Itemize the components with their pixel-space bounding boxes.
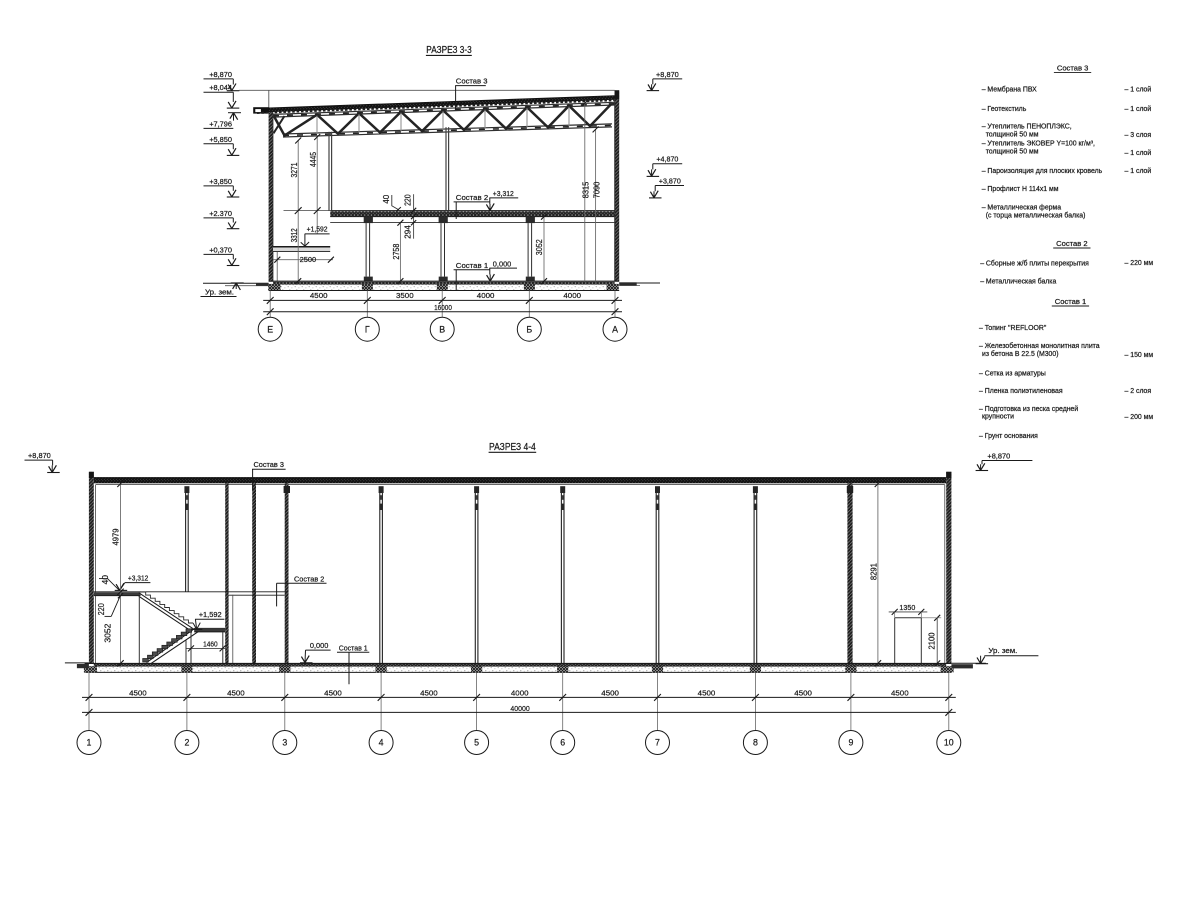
svg-text:Состав 1: Состав 1 [339, 643, 368, 652]
svg-text:3271: 3271 [290, 162, 299, 177]
svg-text:А: А [612, 324, 618, 334]
svg-text:10: 10 [944, 738, 954, 748]
svg-text:1350: 1350 [899, 603, 915, 612]
svg-text:3312: 3312 [290, 228, 299, 242]
svg-text:8291: 8291 [870, 563, 879, 581]
svg-text:Состав 2: Состав 2 [294, 574, 324, 583]
svg-text:+5,850: +5,850 [209, 135, 232, 144]
svg-text:– 150 мм: – 150 мм [1125, 352, 1154, 359]
svg-text:4000: 4000 [477, 291, 495, 300]
svg-text:толщиной 50 мм: толщиной 50 мм [986, 148, 1039, 156]
svg-text:6: 6 [560, 738, 565, 748]
svg-text:– 220 мм: – 220 мм [1125, 260, 1154, 267]
svg-text:– Сборные ж/б плиты перекрытия: – Сборные ж/б плиты перекрытия [980, 260, 1089, 268]
svg-text:40: 40 [382, 194, 391, 204]
svg-text:– Пленка полиэтиленовая: – Пленка полиэтиленовая [979, 388, 1063, 395]
svg-text:– Металлическая ферма: – Металлическая ферма [982, 204, 1062, 211]
svg-text:2758: 2758 [392, 243, 401, 259]
svg-text:0,000: 0,000 [310, 641, 329, 650]
svg-text:Состав 3: Состав 3 [456, 76, 488, 85]
svg-text:+7,796: +7,796 [209, 119, 232, 128]
svg-text:Состав 2: Состав 2 [456, 193, 488, 202]
svg-text:– Топинг "REFLOOR": – Топинг "REFLOOR" [979, 325, 1047, 332]
svg-text:Ур. зем.: Ур. зем. [988, 646, 1017, 655]
svg-text:– Металлическая балка: – Металлическая балка [980, 278, 1056, 286]
svg-text:Ур. зем.: Ур. зем. [205, 288, 234, 297]
svg-text:4500: 4500 [891, 688, 909, 697]
svg-text:8: 8 [753, 738, 758, 748]
svg-text:294: 294 [403, 225, 412, 239]
svg-text:РАЗРЕЗ 4-4: РАЗРЕЗ 4-4 [489, 442, 536, 453]
svg-text:– Профлист Н 114х1 мм: – Профлист Н 114х1 мм [982, 186, 1059, 193]
svg-text:– 1 слой: – 1 слой [1125, 149, 1152, 157]
svg-text:4445: 4445 [309, 152, 318, 167]
svg-text:+8,044: +8,044 [209, 83, 232, 92]
svg-text:Состав 3: Состав 3 [254, 460, 284, 469]
svg-text:2500: 2500 [300, 255, 317, 264]
svg-text:8315: 8315 [581, 181, 590, 198]
svg-text:220: 220 [97, 603, 106, 615]
svg-text:4500: 4500 [310, 291, 328, 300]
svg-text:– 200 мм: – 200 мм [1125, 414, 1154, 421]
svg-text:3052: 3052 [104, 623, 113, 643]
svg-text:– 1 слой: – 1 слой [1125, 105, 1152, 113]
svg-text:+3,850: +3,850 [209, 177, 232, 186]
svg-text:Состав 3: Состав 3 [1057, 63, 1089, 72]
svg-text:40000: 40000 [510, 704, 529, 713]
svg-text:– Сетка из арматуры: – Сетка из арматуры [979, 370, 1046, 377]
svg-text:+8,870: +8,870 [656, 70, 679, 79]
svg-text:крупности: крупности [982, 413, 1014, 420]
svg-text:1460: 1460 [203, 639, 218, 648]
svg-text:Б: Б [526, 324, 532, 334]
svg-text:из бетона В 22.5 (М300): из бетона В 22.5 (М300) [982, 350, 1059, 358]
svg-text:3500: 3500 [396, 291, 414, 300]
svg-text:Состав 1: Состав 1 [1055, 297, 1087, 306]
svg-text:Е: Е [267, 324, 273, 334]
svg-text:+8,870: +8,870 [987, 452, 1010, 461]
svg-text:4500: 4500 [698, 688, 716, 697]
svg-text:4: 4 [379, 738, 384, 748]
svg-text:5: 5 [474, 738, 479, 748]
svg-text:4979: 4979 [111, 528, 120, 546]
svg-text:Состав 2: Состав 2 [1056, 239, 1088, 248]
svg-text:4500: 4500 [324, 688, 342, 697]
svg-text:4000: 4000 [563, 291, 581, 300]
svg-text:+8,870: +8,870 [209, 70, 232, 79]
svg-text:– Утеплитель ПЕНОПЛЭКС,: – Утеплитель ПЕНОПЛЭКС, [982, 123, 1072, 130]
svg-text:0,000: 0,000 [493, 259, 512, 268]
svg-text:7090: 7090 [592, 181, 601, 198]
svg-text:– Грунт основания: – Грунт основания [979, 433, 1038, 440]
svg-text:4500: 4500 [420, 688, 438, 697]
svg-text:– Подготовка из песка средней: – Подготовка из песка средней [979, 405, 1078, 413]
svg-text:+4,870: +4,870 [656, 155, 678, 164]
svg-text:+3,312: +3,312 [493, 189, 514, 198]
svg-text:3052: 3052 [535, 239, 544, 255]
svg-text:+3,870: +3,870 [659, 177, 681, 186]
svg-text:+1,592: +1,592 [307, 225, 328, 234]
svg-text:4000: 4000 [511, 688, 529, 697]
svg-text:– Пароизоляция для плоских кро: – Пароизоляция для плоских кровель [982, 168, 1103, 175]
svg-text:220: 220 [404, 194, 413, 206]
svg-text:РАЗРЕЗ 3-3: РАЗРЕЗ 3-3 [426, 45, 472, 56]
svg-text:3: 3 [282, 738, 287, 748]
svg-text:В: В [439, 324, 445, 334]
svg-text:7: 7 [655, 738, 660, 748]
svg-text:– 1 слой: – 1 слой [1125, 86, 1152, 94]
svg-text:– 3 слоя: – 3 слоя [1125, 132, 1152, 139]
svg-text:1: 1 [87, 738, 92, 748]
svg-text:Состав 1: Состав 1 [456, 261, 488, 270]
svg-text:– 1 слой: – 1 слой [1125, 167, 1152, 175]
svg-text:– Мембрана ПВХ: – Мембрана ПВХ [982, 86, 1037, 94]
svg-text:+8,870: +8,870 [28, 451, 51, 460]
svg-text:– 2 слоя: – 2 слоя [1125, 388, 1152, 395]
svg-text:16000: 16000 [434, 303, 452, 312]
svg-text:– Железобетонная монолитная п: – Железобетонная монолитная плита [979, 342, 1100, 350]
svg-text:4500: 4500 [129, 688, 147, 697]
svg-text:2: 2 [184, 738, 189, 748]
svg-text:+1,592: +1,592 [199, 610, 222, 619]
svg-text:+2.370: +2.370 [209, 209, 232, 218]
svg-text:+3,312: +3,312 [128, 574, 148, 583]
svg-text:4500: 4500 [794, 688, 812, 697]
svg-text:толщиной 50 мм: толщиной 50 мм [986, 130, 1039, 138]
svg-text:4500: 4500 [227, 688, 245, 697]
svg-text:Г: Г [365, 324, 370, 334]
svg-text:2100: 2100 [927, 632, 936, 650]
svg-text:9: 9 [848, 738, 853, 748]
svg-text:4500: 4500 [601, 688, 619, 697]
svg-text:+0,370: +0,370 [209, 245, 232, 254]
svg-text:– Геотекстиль: – Геотекстиль [982, 106, 1027, 113]
svg-text:(с торца металлическая балка): (с торца металлическая балка) [986, 211, 1086, 219]
svg-text:– Утеплитель ЭКОВЕР Y=100 кг/м: – Утеплитель ЭКОВЕР Y=100 кг/м³, [982, 141, 1095, 148]
